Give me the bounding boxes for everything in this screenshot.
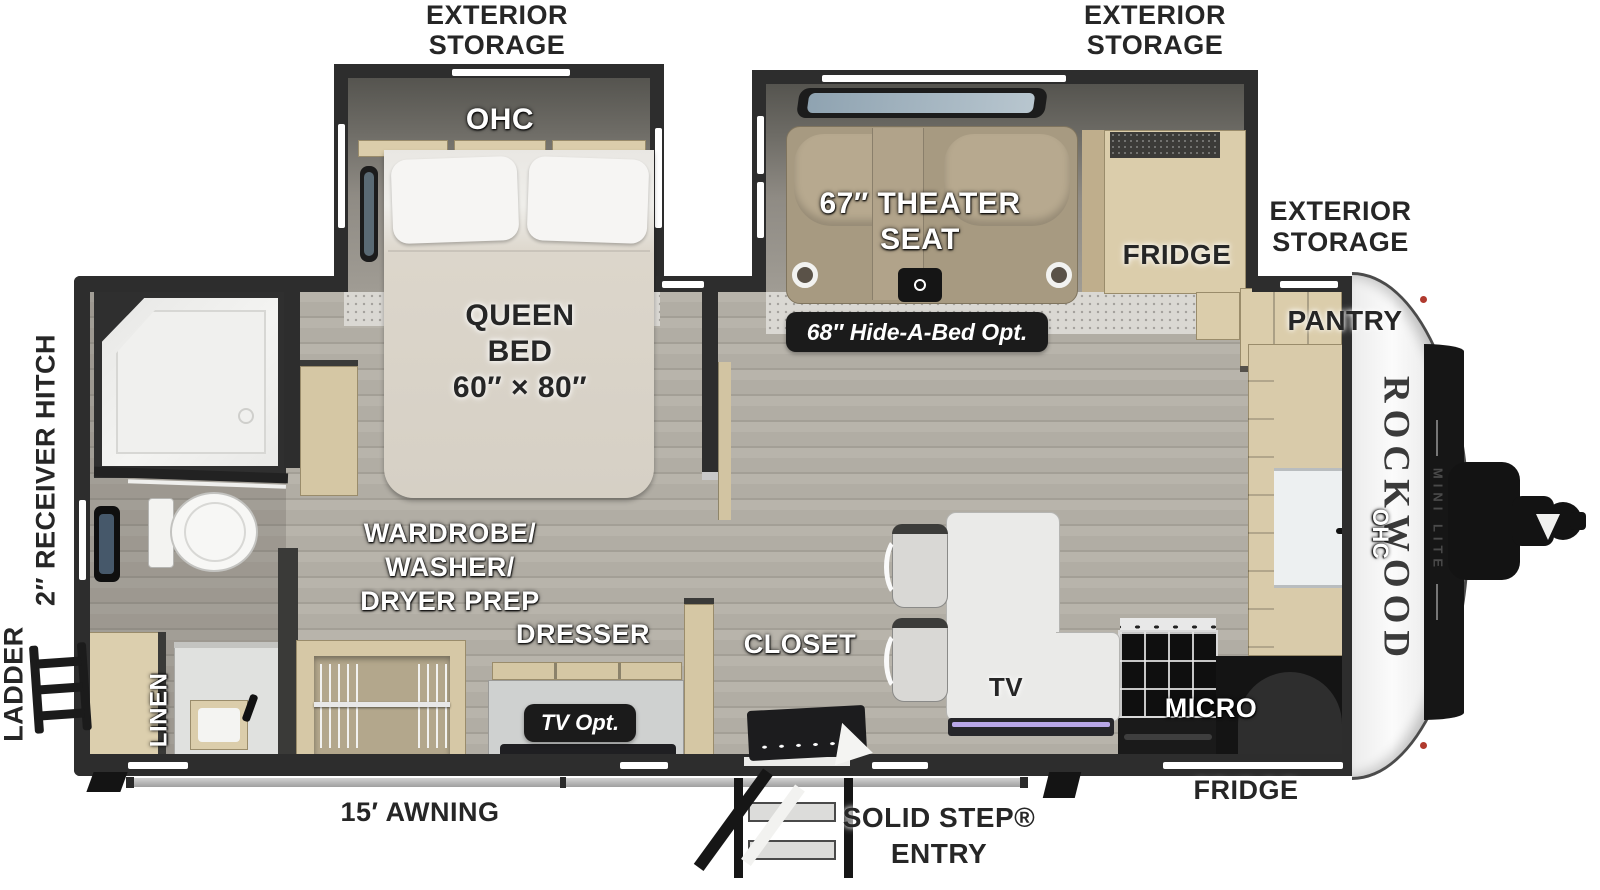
queen-bed-label: QUEEN BED 60″ × 80″ [400,298,640,406]
toilet-seat [184,502,246,562]
bath-wall-cabinet-glass [99,514,114,574]
tv-label: TV [978,674,1034,702]
hitch-stub-icon [1570,512,1586,530]
slide-window-glass [807,93,1036,113]
awning-bar [126,778,1028,787]
bottom-wall-window [1163,762,1343,769]
stabilizer-jack-icon [86,772,127,792]
tv-glow [952,722,1110,727]
label-line: STORAGE [372,30,622,60]
ladder-rung [40,708,86,720]
label-line: 67″ THEATER [808,186,1032,222]
dinette-chair-arc [884,630,914,692]
solid-step-entry-label: SOLID STEP® ENTRY [834,800,1044,872]
label-line: ENTRY [834,836,1044,872]
linen-label: LINEN [122,697,197,723]
stabilizer-jack-icon [1043,772,1081,798]
exterior-storage-label-theater-slide: EXTERIOR STORAGE [1030,0,1280,60]
top-wall-rear-segment [74,276,342,292]
label-text: CLOSET [744,629,857,659]
stove-knob-strip [1120,618,1216,630]
label-text: OHC [466,103,534,136]
wardrobe-label: WARDROBE/ WASHER/ DRYER PREP [330,516,570,618]
exterior-storage-label-front: EXTERIOR STORAGE [1238,196,1443,258]
theater-cupholder-right [1046,262,1072,288]
label-line: EXTERIOR [1238,196,1443,227]
brand-rule [1436,584,1438,620]
top-wall-window-front [1280,281,1338,288]
label-line: 60″ × 80″ [400,370,640,406]
label-line: WASHER/ [330,550,570,584]
hide-a-bed-badge: 68″ Hide-A-Bed Opt. [786,312,1048,352]
ladder-rung [36,656,82,668]
label-text: MICRO [1165,693,1258,723]
awning-bracket [560,777,566,788]
front-marker-light [1420,296,1427,303]
closet-cabinet [684,604,714,766]
bedroom-partition-wall [702,282,718,474]
theater-slide-window-top [822,75,1066,82]
bedroom-sliding-door [718,362,731,520]
dinette-chair-top [892,524,948,534]
entry-steps-rail [734,778,743,878]
wardrobe-rod [314,702,450,707]
island-counter-ext [1056,632,1120,722]
bed-blanket-seam [388,250,650,252]
oven-sheen [1124,734,1212,740]
linen-label-text: LINEN [146,673,172,748]
closet-label: CLOSET [740,630,860,659]
top-wall-window [662,281,704,288]
label-text: FRIDGE [1193,775,1298,805]
bath-vanity-backsplash [174,642,286,648]
shower-pan-inner [116,310,266,454]
bottom-wall-window [620,762,668,769]
awning-label: 15′ AWNING [330,798,510,827]
brand-rule [1436,420,1438,456]
dinette-chair-arc [884,536,914,598]
bed-pillow-left [391,156,520,244]
label-line: WARDROBE/ [330,516,570,550]
label-line: STORAGE [1238,227,1443,258]
bed-wardrobe [300,366,358,496]
label-text: PANTRY [1288,305,1403,336]
label-text: FRIDGE [1123,239,1232,270]
label-text: OHC [1368,509,1392,559]
tongue-jack-icon [1536,514,1560,540]
label-text: LADDER [0,626,28,742]
kitchen-counter-doors [1248,344,1274,656]
bed-slide-window-left [338,124,345,228]
ladder-icon [27,642,93,736]
dresser-label: DRESSER [516,620,646,649]
bath-sink-basin [198,708,240,742]
label-text: 15′ AWNING [341,797,500,827]
theater-slide-window-left2 [757,182,764,238]
bedroom-ohc-label: OHC [440,104,560,136]
floorplan-canvas: LINEN [0,0,1600,890]
micro-label: MICRO [1146,694,1276,723]
badge-text: TV Opt. [541,710,619,736]
bed-slide-window-top [452,69,570,76]
fridge-door-side-label: FRIDGE [1186,776,1306,805]
label-line: DRYER PREP [330,584,570,618]
label-text: DRESSER [516,619,650,649]
awning-bracket [126,777,134,788]
label-text: TV [989,672,1023,702]
theater-slide-window-left [757,116,764,174]
bottom-wall-window [128,762,188,769]
bed-pillow-right [527,156,650,244]
label-line: STORAGE [1030,30,1280,60]
label-text: 2″ RECEIVER HITCH [32,334,61,606]
label-line: QUEEN [400,298,640,334]
propane-cover-icon [1448,462,1520,580]
theater-seat-label: 67″ THEATER SEAT [808,186,1032,258]
tv-strip [948,718,1114,736]
dresser-drawers [492,662,682,680]
label-line: EXTERIOR [372,0,622,30]
bathroom-divider-wall [284,290,300,468]
shower-drain [238,408,254,424]
label-line: SOLID STEP® [834,800,1044,836]
slide-fridge-counter [1110,132,1220,158]
wd-prep-wall [278,548,298,766]
awning-bracket [1020,777,1028,788]
brand-subtitle-text: MINI LITE [1431,468,1446,572]
label-line: SEAT [808,222,1032,258]
theater-cupholder-left [792,262,818,288]
bedside-window-glass [364,172,374,256]
kitchen-ohc-small [1196,292,1240,340]
slide-fridge-label: FRIDGE [1112,240,1242,270]
label-line: BED [400,334,640,370]
exterior-storage-label-bed-slide: EXTERIOR STORAGE [372,0,622,60]
pantry-label: PANTRY [1250,306,1440,336]
bottom-wall-window [872,762,928,769]
badge-text: 68″ Hide-A-Bed Opt. [807,319,1028,346]
slide-fridge-side-panel [1082,130,1104,292]
theater-control-dot [914,279,926,291]
rear-wall-window [79,500,86,580]
front-marker-light [1420,742,1427,749]
bed-slide-window-right [655,128,662,228]
dinette-chair-top [892,618,948,628]
bedroom-partition-cap [702,472,718,480]
label-line: EXTERIOR [1030,0,1280,30]
tv-opt-badge: TV Opt. [524,704,636,742]
ladder-rung [38,682,84,694]
